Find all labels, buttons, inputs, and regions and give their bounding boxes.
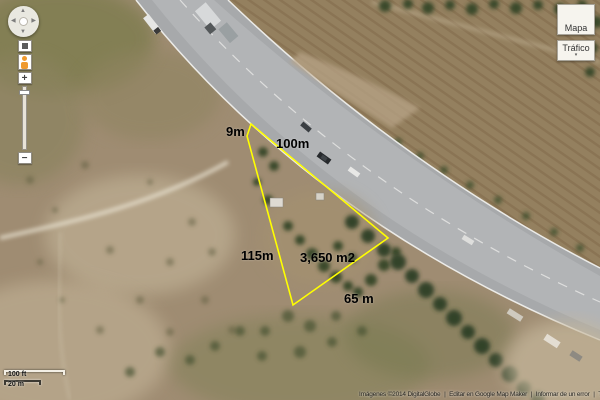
zoom-slider-track[interactable] [22, 86, 27, 150]
map-type-button-mapa[interactable]: Mapa [557, 4, 595, 35]
overview-icon [22, 43, 28, 49]
edit-map-maker-link[interactable]: Editar en Google Map Maker [449, 391, 527, 398]
pan-control[interactable]: ▲ ◀ ▶ ▼ [8, 6, 39, 37]
pegman-icon [22, 56, 27, 61]
imagery-credit: Imágenes ©2014 DigitalGlobe [359, 391, 440, 398]
report-error-link[interactable]: Informar de un error [536, 391, 590, 398]
zoom-control: + − [17, 40, 32, 164]
attribution-bar: Imágenes ©2014 DigitalGlobe | Editar en … [359, 391, 600, 398]
zoom-out-button[interactable]: − [18, 152, 32, 164]
pan-right-arrow-icon[interactable]: ▶ [31, 18, 36, 24]
pan-left-arrow-icon[interactable]: ◀ [11, 18, 16, 24]
separator: | [444, 391, 446, 398]
pan-center-button[interactable] [19, 17, 28, 26]
chevron-down-icon: ▾ [575, 53, 578, 58]
pan-down-arrow-icon[interactable]: ▼ [20, 29, 26, 35]
measurement-label-100m: 100m [276, 136, 309, 151]
pegman-button[interactable] [18, 54, 32, 70]
pegman-icon-body [21, 62, 28, 69]
parcel-outline [0, 0, 600, 400]
area-label: 3,650 m2 [300, 250, 355, 265]
mapa-label: Mapa [565, 23, 588, 33]
scale-metric-label: 20 m [8, 381, 24, 388]
overview-map-button[interactable] [18, 40, 32, 52]
scale-imperial-label: 100 ft [8, 371, 26, 378]
separator: | [531, 391, 533, 398]
pan-up-arrow-icon[interactable]: ▲ [20, 8, 26, 14]
parcel-polygon [247, 124, 388, 305]
separator: | [593, 391, 595, 398]
map-type-bar: Mapa Tráfico ▾ [557, 4, 595, 61]
zoom-in-button[interactable]: + [18, 72, 32, 84]
map-viewport[interactable]: 9m 100m 115m 3,650 m2 65 m ▲ ◀ ▶ ▼ + − M… [0, 0, 600, 400]
measurement-label-9m: 9m [226, 124, 245, 139]
zoom-slider-handle[interactable] [19, 90, 30, 95]
measurement-label-115m: 115m [241, 248, 274, 263]
measurement-label-65m: 65 m [344, 291, 374, 306]
traffic-button[interactable]: Tráfico ▾ [557, 40, 595, 61]
